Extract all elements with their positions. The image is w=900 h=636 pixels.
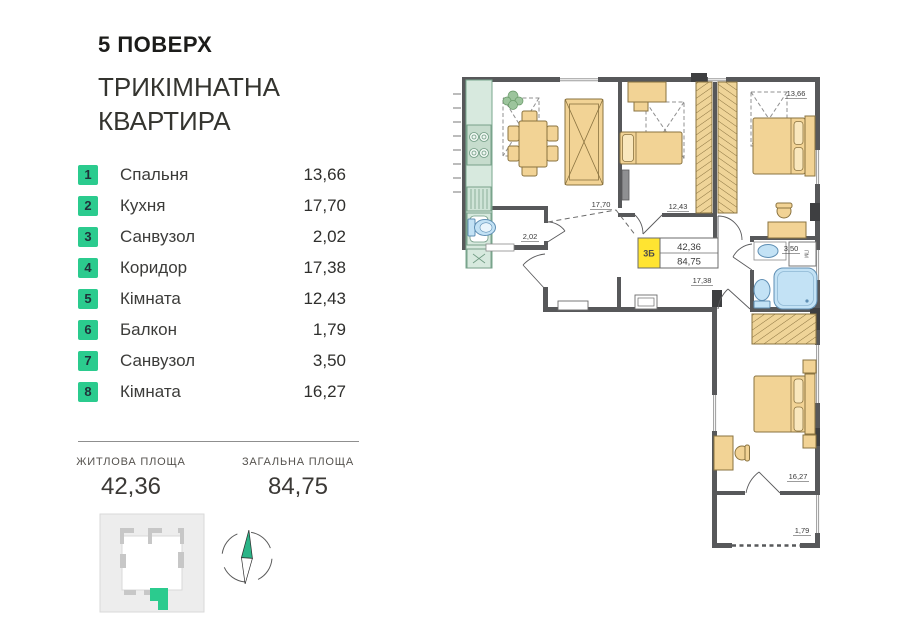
desk-bedroom (768, 203, 806, 238)
apartment-type-title: ТРИКІМНАТНА КВАРТИРА (98, 70, 280, 138)
building-locator-map (90, 506, 214, 622)
hall-cabinet (635, 295, 657, 309)
room-name: Санвузол (120, 351, 313, 371)
wardrobe (718, 82, 737, 213)
desk-room-mid (628, 82, 666, 111)
kitchen-counter (466, 80, 492, 268)
shower-icon (774, 268, 817, 309)
room-name: Кухня (120, 196, 303, 216)
apartment-badge: 3Б 42,36 84,75 (638, 238, 718, 268)
compass-icon (217, 527, 277, 587)
dining-table (508, 111, 558, 176)
wardrobe (696, 82, 712, 213)
room-number-badge: 1 (78, 165, 98, 185)
sink-icon (758, 245, 778, 258)
apartment-type-line1: ТРИКІМНАТНА (98, 70, 280, 104)
page: 5 ПОВЕРХ ТРИКІМНАТНА КВАРТИРА 1 Спальня … (0, 0, 900, 636)
legend-row-2: 2 Кухня 17,70 (78, 190, 346, 221)
room-area: 13,66 (303, 165, 346, 185)
compass-needle-north (241, 530, 254, 559)
apartment-type-line2: КВАРТИРА (98, 104, 280, 138)
total-area-label: ЗАГАЛЬНА ПЛОЩА (238, 456, 358, 468)
label-room-lower: 16,27 (789, 472, 808, 481)
building-section-marks (120, 528, 184, 595)
room-legend: 1 Спальня 13,66 2 Кухня 17,70 3 Санвузол… (78, 159, 346, 407)
stove-icon (467, 125, 491, 165)
room-name: Балкон (120, 320, 313, 340)
toilet-icon (754, 280, 770, 301)
badge-total-area: 84,75 (677, 257, 701, 268)
radiator (486, 244, 514, 251)
room-name: Кімната (120, 382, 303, 402)
floor-title: 5 ПОВЕРХ (98, 32, 212, 58)
legend-row-1: 1 Спальня 13,66 (78, 159, 346, 190)
compass-needle-south (240, 558, 253, 585)
bed-room-lower (754, 360, 816, 448)
room-area: 2,02 (313, 227, 346, 247)
shaft-hatch-marks (453, 94, 461, 192)
room-number-badge: 6 (78, 320, 98, 340)
nightstand (803, 360, 816, 373)
total-area-value: 84,75 (238, 473, 358, 501)
label-bath-small: 2,02 (523, 232, 538, 241)
floor-plan: 3Б 42,36 84,75 ПМ (450, 58, 860, 568)
radiator (622, 170, 629, 200)
washing-machine-label: ПМ (803, 250, 809, 258)
label-hall: 17,38 (693, 276, 712, 285)
living-area-value: 42,36 (71, 473, 191, 501)
sofa (565, 99, 603, 185)
nightstand (803, 435, 816, 448)
room-area: 1,79 (313, 320, 346, 340)
label-bedroom: 13,66 (787, 89, 806, 98)
room-name: Санвузол (120, 227, 313, 247)
room-number-badge: 4 (78, 258, 98, 278)
total-area-summary: ЗАГАЛЬНА ПЛОЩА 84,75 (238, 456, 358, 501)
room-area: 17,70 (303, 196, 346, 216)
legend-row-4: 4 Коридор 17,38 (78, 252, 346, 283)
room-number-badge: 8 (78, 382, 98, 402)
room-area: 16,27 (303, 382, 346, 402)
bed-bedroom (753, 116, 815, 176)
badge-code: 3Б (643, 249, 655, 259)
room-area: 3,50 (313, 351, 346, 371)
label-bath-big: 3,50 (784, 244, 799, 253)
plant-icon (503, 91, 523, 110)
room-number-badge: 7 (78, 351, 98, 371)
room-number-badge: 5 (78, 289, 98, 309)
room-area: 17,38 (303, 258, 346, 278)
badge-living-area: 42,36 (677, 242, 701, 253)
living-area-summary: ЖИТЛОВА ПЛОЩА 42,36 (71, 456, 191, 501)
room-name: Коридор (120, 258, 303, 278)
legend-row-7: 7 Санвузол 3,50 (78, 345, 346, 376)
label-balcony: 1,79 (795, 526, 810, 535)
label-room-mid: 12,43 (669, 202, 688, 211)
room-area: 12,43 (303, 289, 346, 309)
radiator (558, 301, 588, 310)
legend-row-3: 3 Санвузол 2,02 (78, 221, 346, 252)
desk-room-lower (714, 436, 750, 470)
room-number-badge: 3 (78, 227, 98, 247)
room-name: Спальня (120, 165, 303, 185)
living-area-label: ЖИТЛОВА ПЛОЩА (71, 456, 191, 468)
toilet-icon (468, 219, 496, 236)
label-kitchen: 17,70 (592, 200, 611, 209)
legend-row-5: 5 Кімната 12,43 (78, 283, 346, 314)
legend-row-6: 6 Балкон 1,79 (78, 314, 346, 345)
bed-room-mid (620, 132, 682, 164)
wardrobe (752, 314, 816, 344)
room-name: Кімната (120, 289, 303, 309)
summary-divider (78, 441, 359, 442)
room-number-badge: 2 (78, 196, 98, 216)
legend-row-8: 8 Кімната 16,27 (78, 376, 346, 407)
